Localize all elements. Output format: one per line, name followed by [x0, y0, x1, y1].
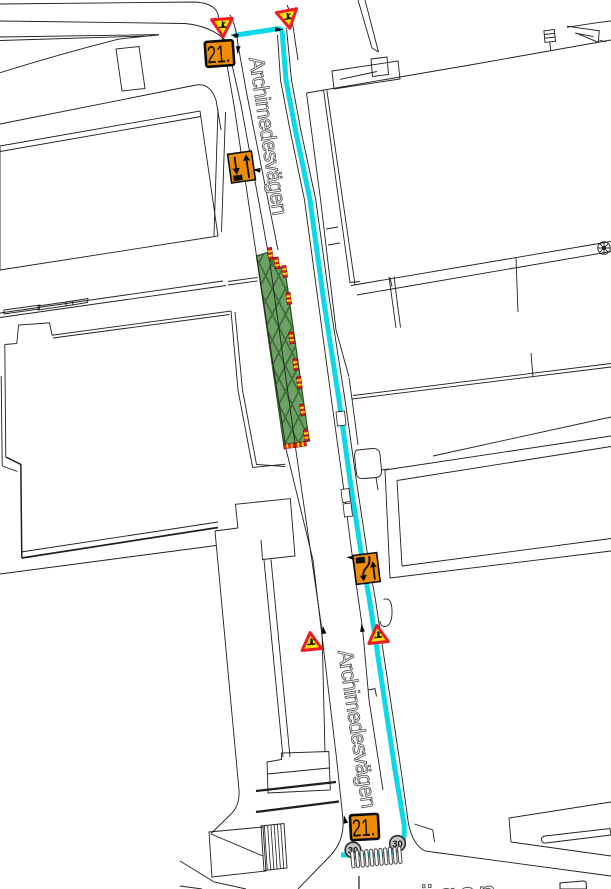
svg-text:21.: 21.: [206, 41, 231, 70]
svg-text:21.: 21.: [351, 814, 375, 842]
